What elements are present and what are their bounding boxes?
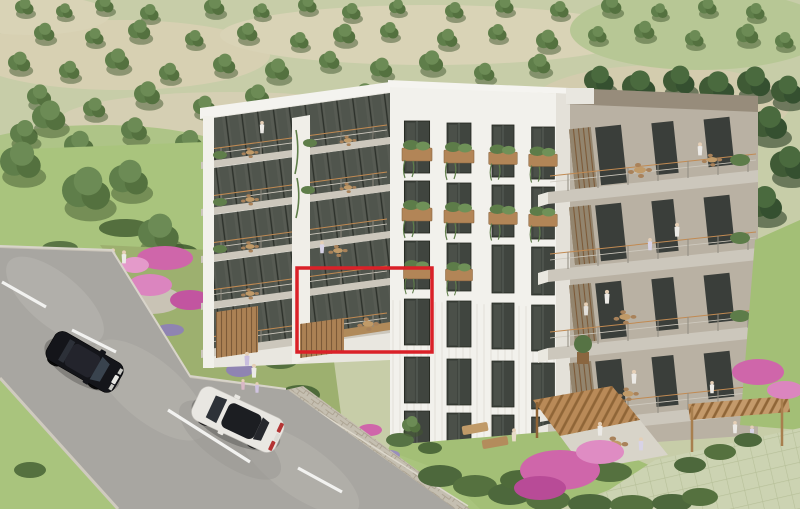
wood-screen-slats <box>216 306 258 358</box>
shrub <box>418 442 442 454</box>
pedestrian-child <box>241 379 245 390</box>
window <box>704 351 735 399</box>
resident <box>710 381 714 393</box>
window <box>532 305 555 351</box>
resident <box>512 428 517 441</box>
scene-canvas <box>0 0 800 509</box>
resident <box>733 421 737 433</box>
resident <box>604 290 609 304</box>
pedestrian-child <box>255 382 259 393</box>
balcony-plant <box>213 198 227 206</box>
corner-pier <box>203 116 214 368</box>
resident <box>639 437 644 450</box>
pedestrian <box>251 364 256 378</box>
resident <box>648 238 652 250</box>
pedestrian <box>122 250 127 263</box>
window <box>492 245 514 293</box>
architectural-rendering <box>0 0 800 509</box>
window <box>447 301 471 347</box>
resident <box>698 142 703 155</box>
balcony-plant <box>730 232 750 244</box>
pedestrian <box>244 352 249 366</box>
roof-corner-white <box>566 88 594 104</box>
balcony-plant <box>301 186 315 194</box>
resident <box>320 241 324 253</box>
window <box>404 299 429 345</box>
window <box>704 195 735 245</box>
window <box>447 359 471 405</box>
left-wing <box>200 82 390 368</box>
window <box>492 361 514 407</box>
balcony-plant <box>303 139 317 147</box>
balcony-plant <box>730 154 750 166</box>
resident <box>584 302 589 315</box>
resident <box>674 223 679 237</box>
resident <box>597 422 602 436</box>
resident <box>631 370 636 384</box>
shrub <box>14 462 46 478</box>
window <box>492 303 514 349</box>
resident <box>260 121 264 133</box>
balcony-plant <box>213 245 227 253</box>
window <box>404 357 429 403</box>
balcony-plant <box>730 310 750 322</box>
window <box>704 273 735 323</box>
balcony-plant <box>213 151 227 159</box>
